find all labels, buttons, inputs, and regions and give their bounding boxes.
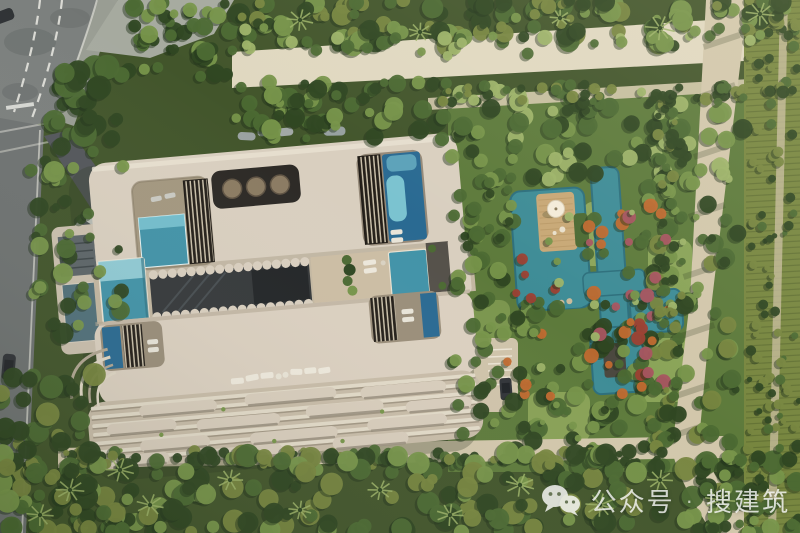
render-scene [0, 0, 800, 533]
watermark-brand: 搜建筑 [706, 482, 790, 519]
watermark: 公众号 · 搜建筑 [542, 482, 790, 519]
light-overlay [0, 0, 800, 533]
watermark-label: 公众号 [591, 482, 675, 519]
aerial-render-canvas: 公众号 · 搜建筑 [0, 0, 800, 533]
watermark-separator: · [686, 488, 695, 514]
wechat-icon [542, 484, 582, 518]
